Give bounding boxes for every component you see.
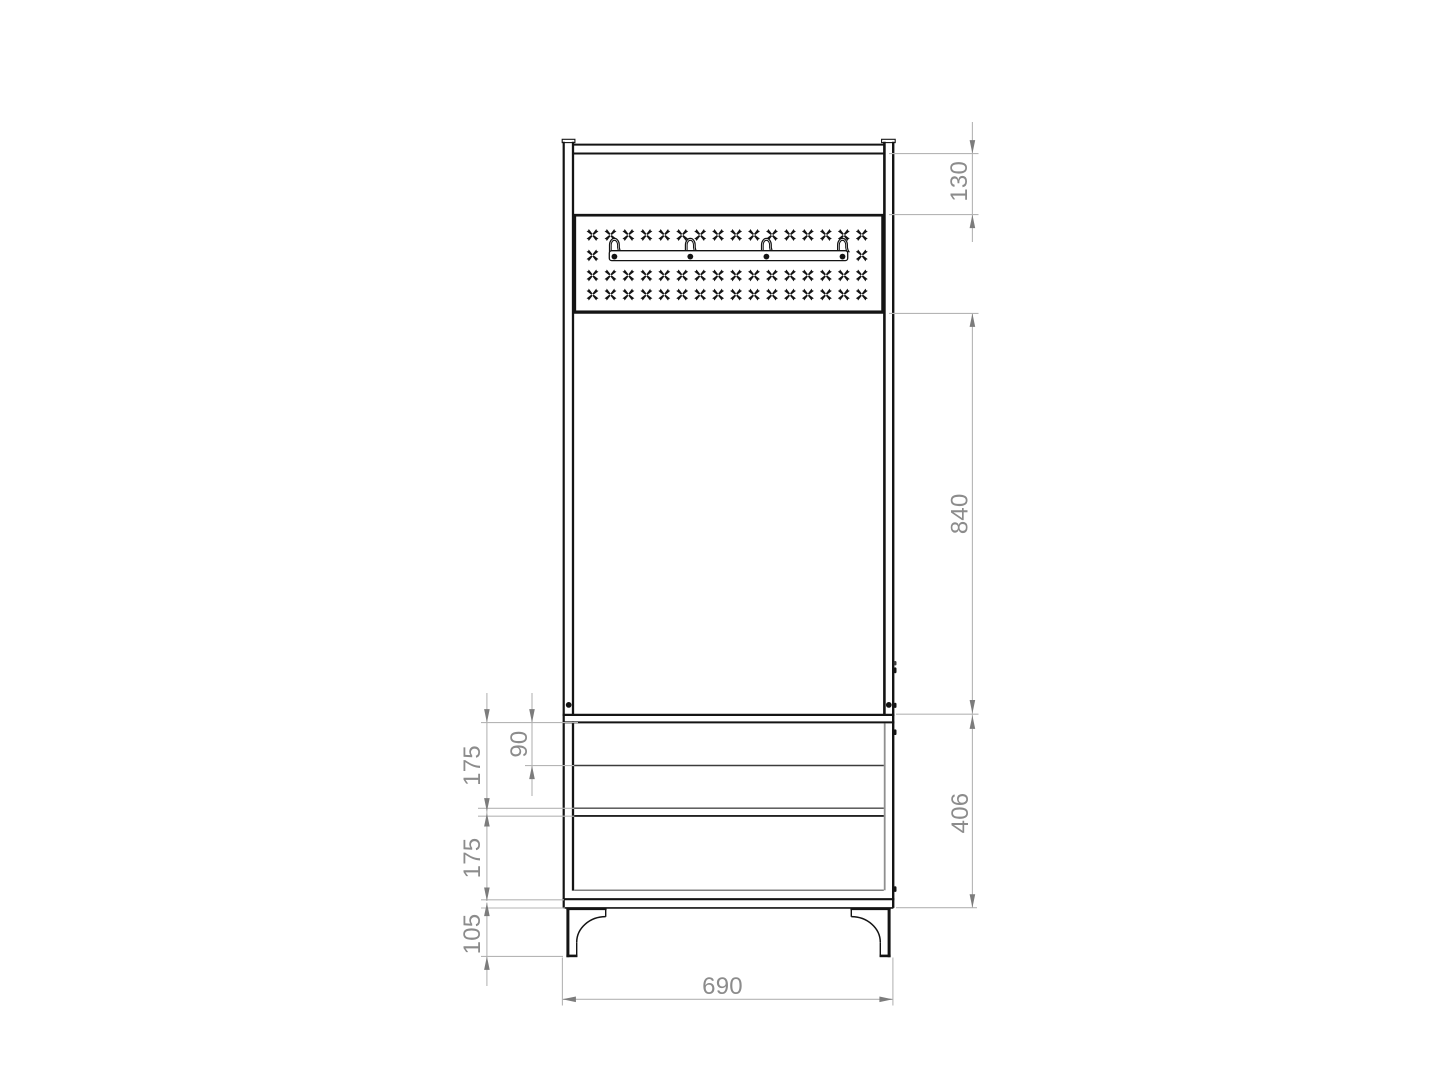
svg-text:840: 840: [947, 493, 974, 534]
svg-text:105: 105: [459, 914, 486, 955]
svg-text:130: 130: [946, 161, 973, 202]
svg-text:175: 175: [459, 745, 486, 786]
svg-text:90: 90: [506, 731, 533, 758]
svg-text:175: 175: [459, 838, 486, 879]
svg-text:690: 690: [702, 973, 743, 1000]
svg-text:406: 406: [947, 793, 974, 834]
